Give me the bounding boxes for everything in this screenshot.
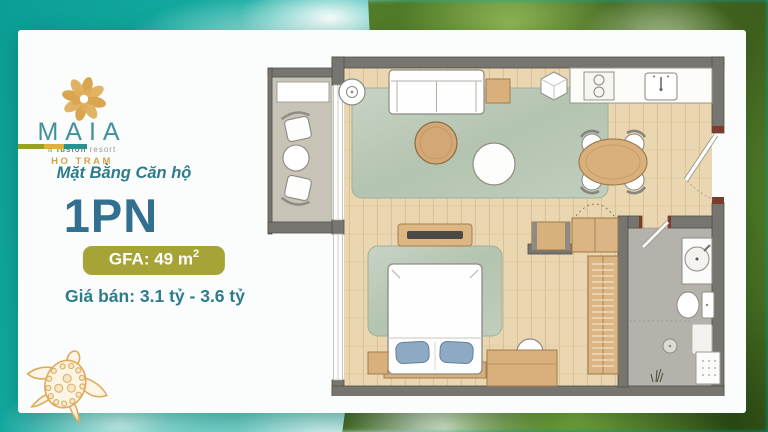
- shower-tray: [696, 352, 720, 384]
- dining-area: [579, 131, 647, 193]
- sink: [645, 73, 677, 100]
- bath-mat: [692, 324, 712, 354]
- side-table: [486, 79, 510, 103]
- divider-segment-gold: [44, 144, 64, 149]
- unit-type: 1PN: [64, 188, 158, 243]
- round-side-table: [473, 143, 515, 185]
- pillow: [395, 341, 429, 364]
- balcony-bench: [277, 82, 329, 102]
- luggage-bench: [532, 222, 570, 250]
- divider-segment-olive: [18, 144, 44, 149]
- floorplan-subtitle: Mặt Bằng Căn hộ: [57, 164, 192, 183]
- stove: [584, 72, 614, 100]
- balcony-table: [283, 145, 309, 171]
- tv-console: [398, 224, 472, 246]
- wardrobe: [588, 256, 618, 374]
- toilet: [677, 292, 714, 318]
- coffee-table: [415, 122, 457, 164]
- divider-bar: [18, 144, 87, 149]
- turtle-icon: [10, 340, 120, 430]
- shower-drain: [663, 339, 677, 353]
- desk: [487, 350, 557, 386]
- bathroom-sink: [682, 238, 712, 284]
- divider-segment-teal: [64, 144, 87, 149]
- gfa-badge: GFA: 49 m2: [83, 246, 225, 275]
- nightstand: [368, 352, 388, 374]
- floor-lamp: [339, 79, 365, 105]
- slide: MAIA a fusion resort HO TRAM Mặt Bằng Că…: [0, 0, 768, 432]
- dining-table: [579, 139, 647, 185]
- price-range: Giá bán: 3.1 tỷ - 3.6 tỷ: [65, 286, 245, 307]
- pillow: [439, 341, 473, 364]
- floor-plan: [266, 52, 728, 396]
- brand-name: MAIA: [37, 118, 126, 147]
- sofa: [389, 70, 484, 114]
